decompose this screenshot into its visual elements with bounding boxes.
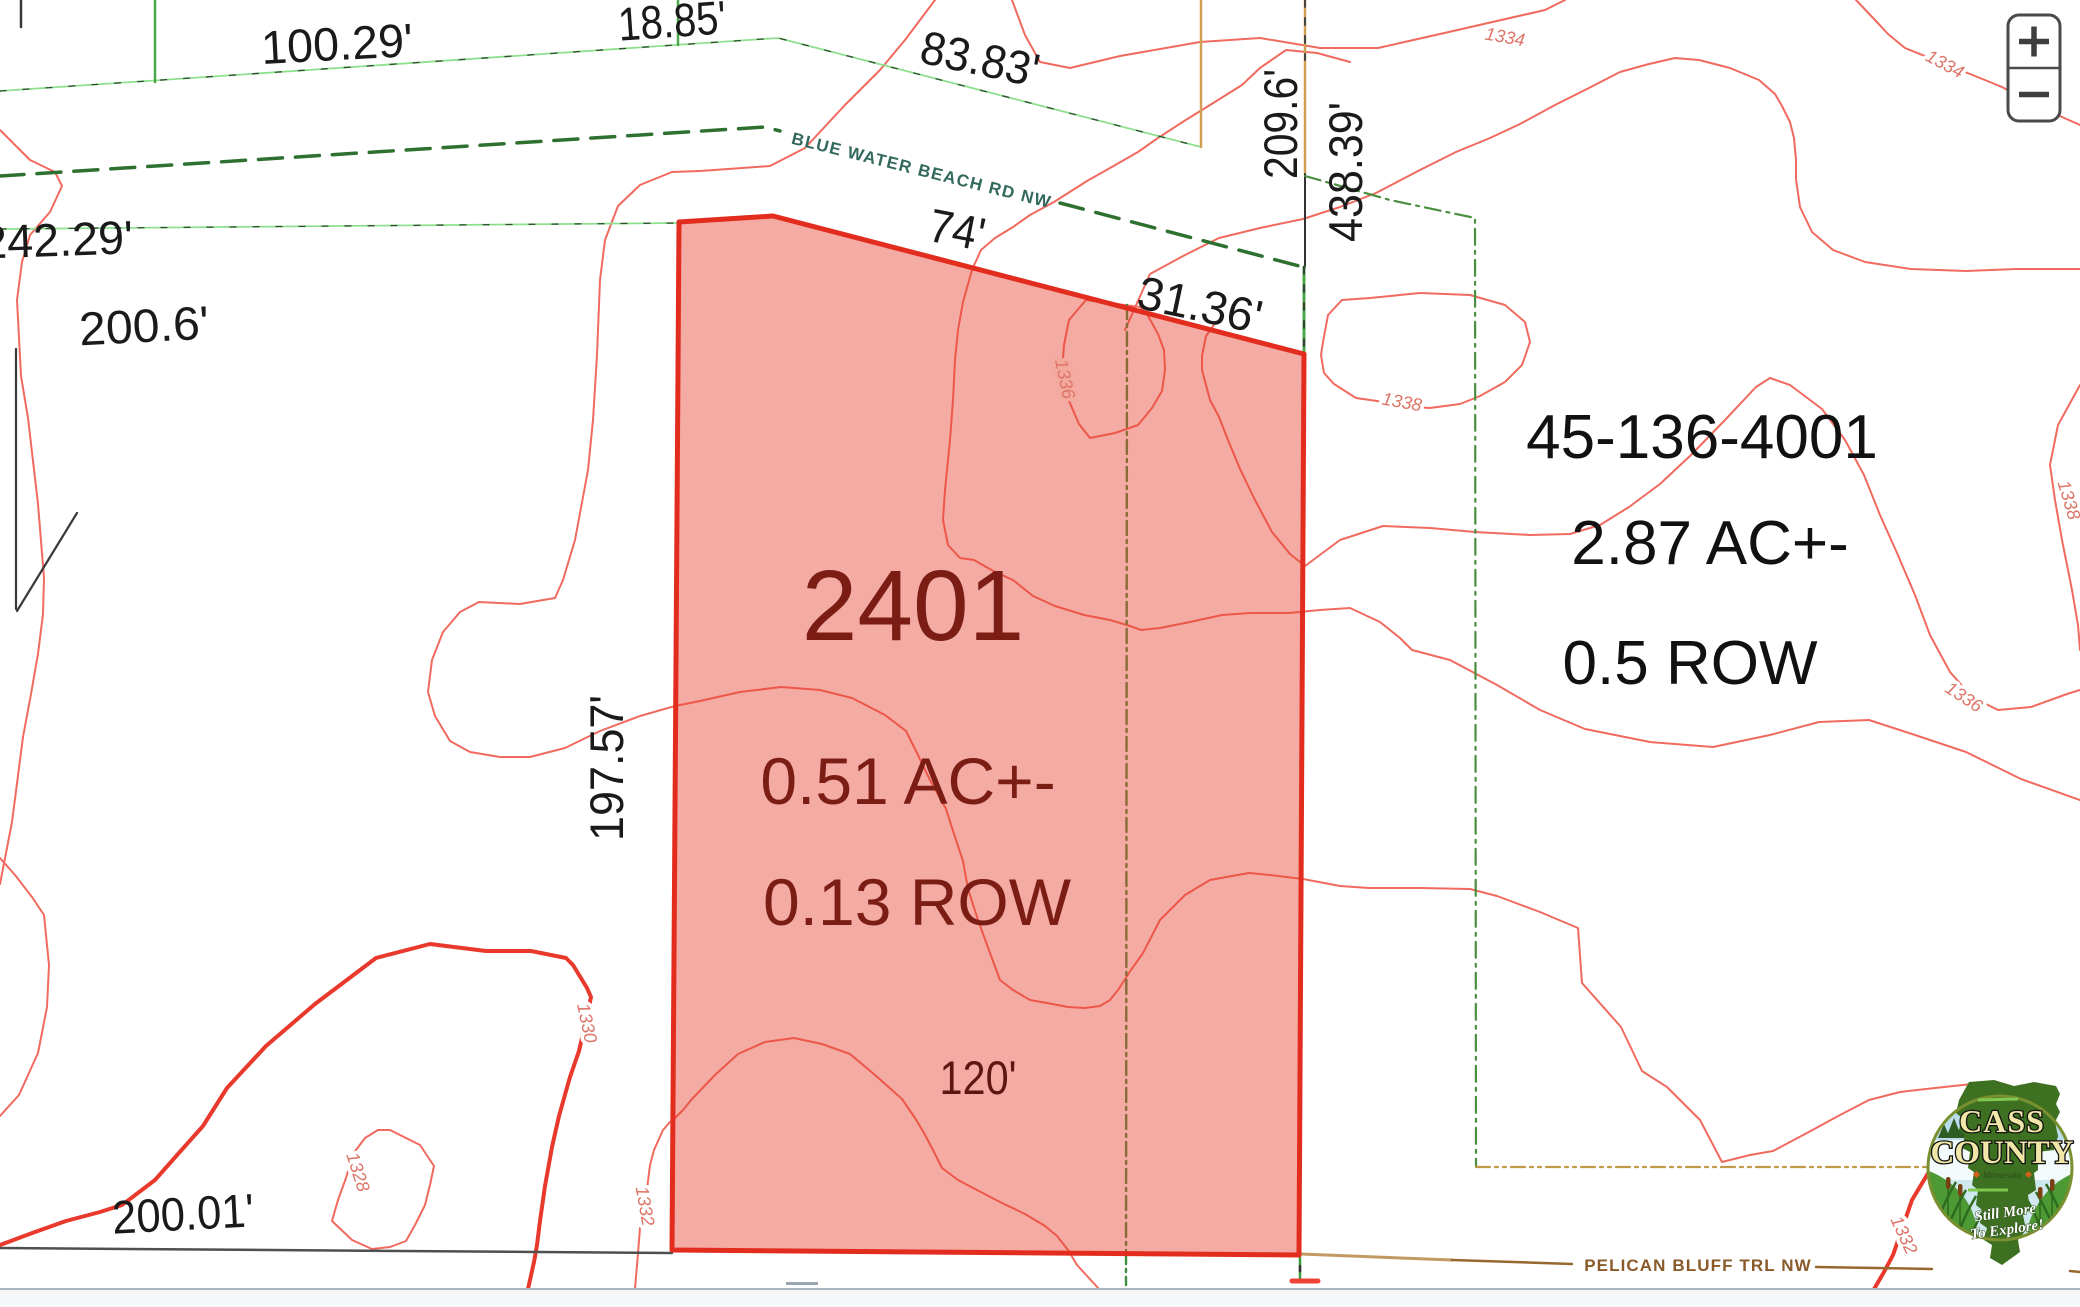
svg-text:0.51 AC+-: 0.51 AC+- (760, 744, 1055, 818)
svg-text:45-136-4001: 45-136-4001 (1526, 403, 1878, 472)
svg-text:200.6': 200.6' (78, 296, 211, 356)
svg-text:0.5 ROW: 0.5 ROW (1563, 629, 1818, 698)
svg-text:120': 120' (940, 1051, 1017, 1104)
svg-text:Minnesota: Minnesota (1982, 1170, 2021, 1180)
svg-text:100.29': 100.29' (260, 13, 415, 74)
svg-text:197.57': 197.57' (580, 695, 633, 841)
svg-text:1334: 1334 (1484, 24, 1527, 51)
svg-text:1332: 1332 (632, 1185, 659, 1228)
svg-text:CASS: CASS (1959, 1103, 2045, 1139)
svg-text:BLUE WATER BEACH RD NW: BLUE WATER BEACH RD NW (790, 129, 1054, 212)
svg-text:PELICAN BLUFF TRL NW: PELICAN BLUFF TRL NW (1584, 1256, 1812, 1275)
svg-text:1330: 1330 (573, 1001, 601, 1044)
svg-text:18.85': 18.85' (616, 0, 727, 51)
svg-text:200.01': 200.01' (111, 1183, 256, 1243)
svg-text:438.39': 438.39' (1319, 102, 1372, 242)
svg-text:1338: 1338 (1381, 389, 1424, 416)
svg-text:1332: 1332 (1886, 1213, 1921, 1258)
svg-text:242.29': 242.29' (0, 210, 134, 268)
svg-text:COUNTY: COUNTY (1930, 1135, 2073, 1171)
svg-text:209.6': 209.6' (1254, 69, 1307, 179)
svg-text:83.83': 83.83' (916, 20, 1044, 97)
svg-text:1336: 1336 (1942, 678, 1987, 717)
svg-text:0.13 ROW: 0.13 ROW (763, 865, 1072, 939)
svg-text:2401: 2401 (802, 550, 1024, 662)
svg-text:1334: 1334 (1923, 46, 1968, 82)
svg-text:74': 74' (925, 198, 990, 261)
svg-text:2.87 AC+-: 2.87 AC+- (1571, 509, 1848, 578)
